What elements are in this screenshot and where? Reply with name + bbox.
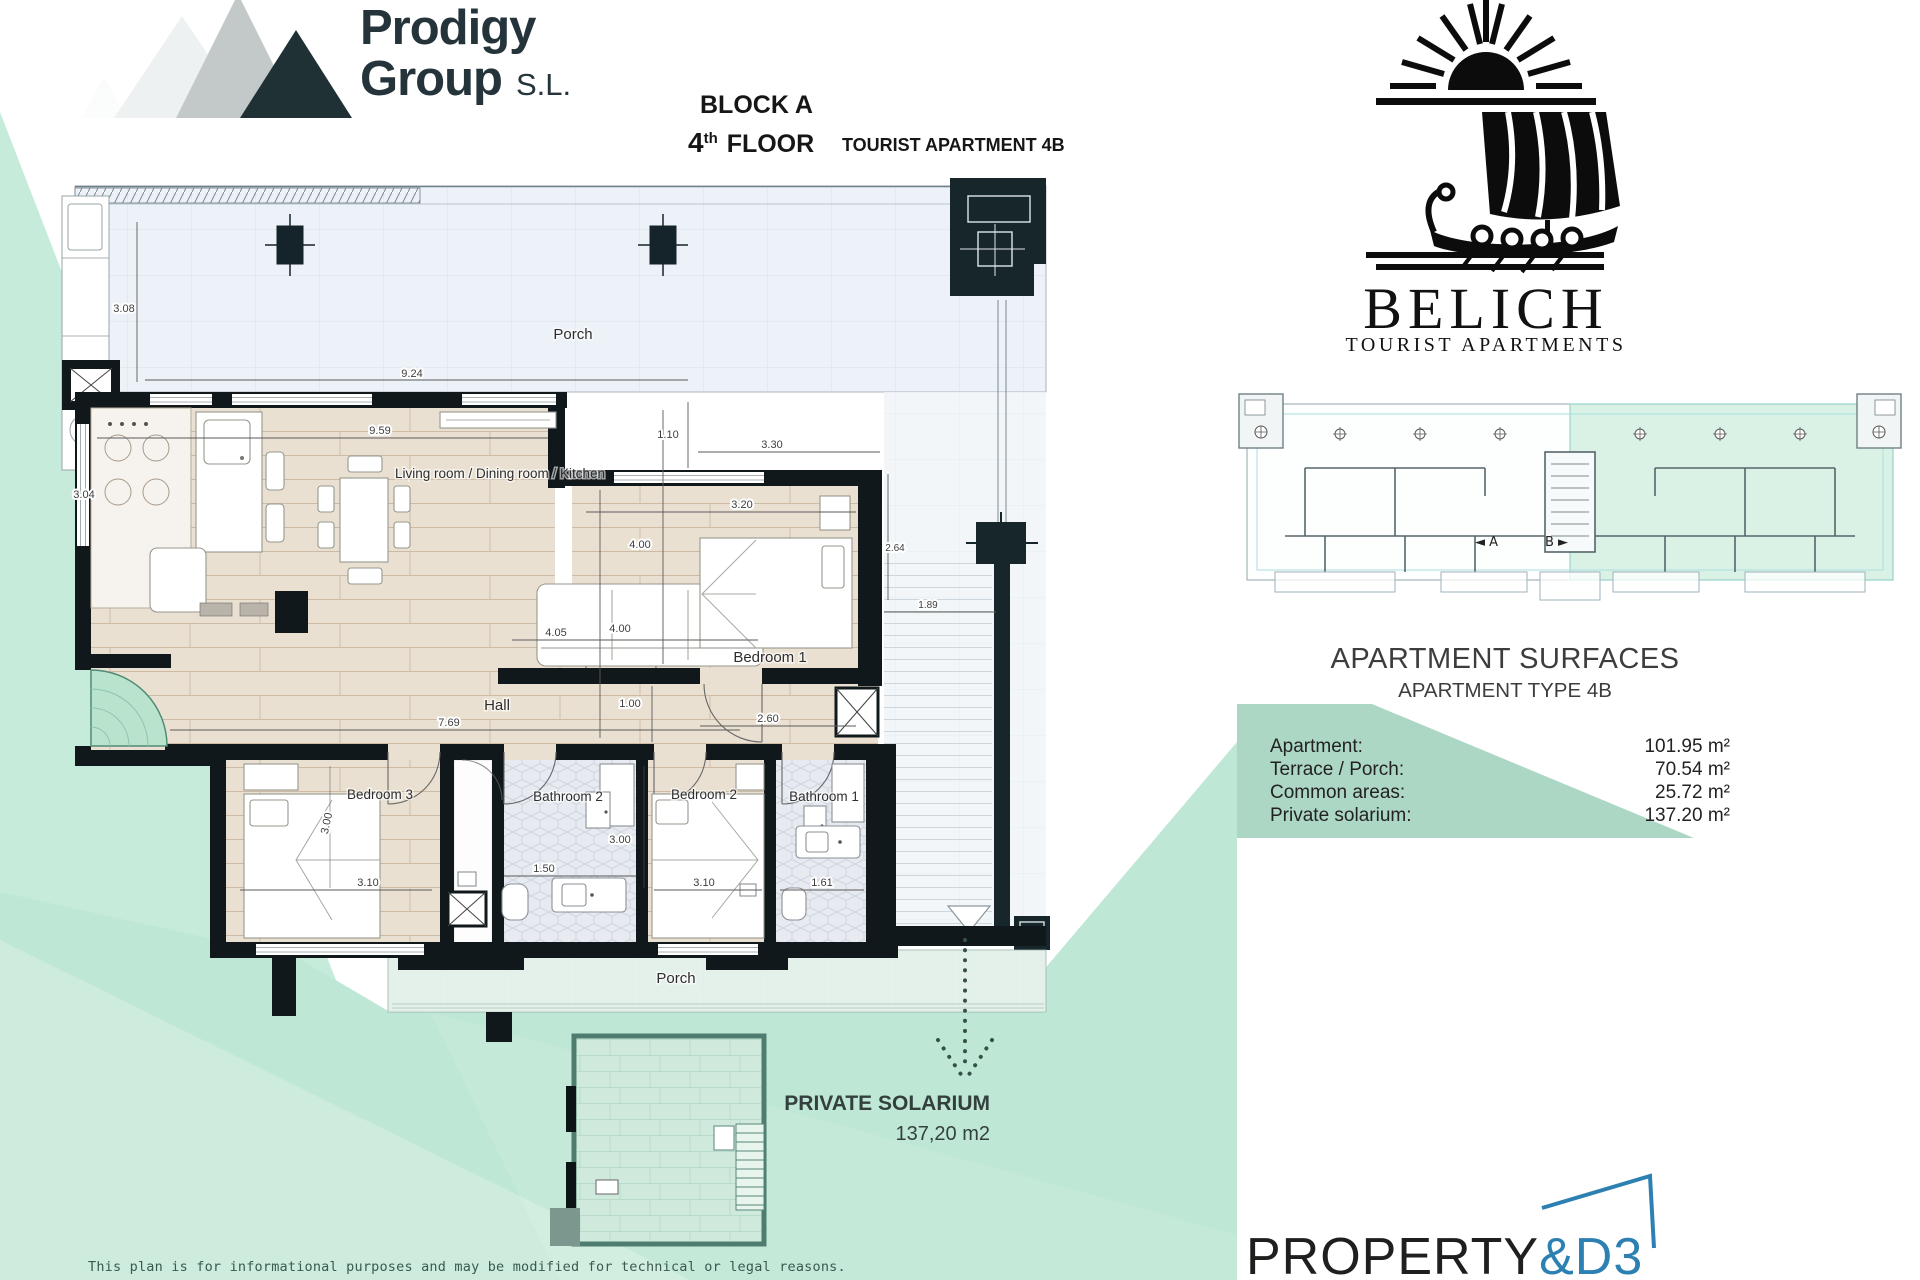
surfaces-row-label: Private solarium: bbox=[1270, 805, 1412, 826]
armchair bbox=[150, 548, 206, 612]
dim-living-height: 4.00 bbox=[629, 539, 650, 551]
svg-text:PROPERTY&D3: PROPERTY&D3 bbox=[1246, 1228, 1643, 1280]
belich-subtitle: TOURIST APARTMENTS bbox=[1346, 334, 1627, 356]
dim-terrace-width: 1.89 bbox=[918, 600, 938, 611]
surfaces-row-label: Terrace / Porch: bbox=[1270, 759, 1404, 780]
solarium-landing bbox=[714, 1126, 734, 1150]
dim-bathroom1-width: 1.61 bbox=[811, 877, 832, 889]
property-wordmark: PROPERTY bbox=[1246, 1228, 1539, 1280]
surfaces-title: APARTMENT SURFACES bbox=[1330, 643, 1679, 675]
porch-post-stub bbox=[486, 1012, 512, 1042]
dim-recess: 1.10 bbox=[657, 429, 678, 441]
right-terrace: 1.89 bbox=[884, 300, 1050, 950]
floor-word: FLOOR bbox=[720, 130, 814, 158]
dim-bedroom1-width: 3.20 bbox=[731, 499, 752, 511]
key-plan-unit-a: ◄ A bbox=[1475, 535, 1498, 550]
top-porch: Porch 3.08 9.24 bbox=[75, 178, 1046, 392]
prodigy-wordmark-suffix: S.L. bbox=[516, 67, 571, 102]
surfaces-row-value: 25.72 m² bbox=[1655, 782, 1730, 803]
dim-bedroom2-height: 3.00 bbox=[609, 834, 630, 846]
surfaces-row-value: 70.54 m² bbox=[1655, 759, 1730, 780]
disclaimer-text: This plan is for informational purposes … bbox=[88, 1259, 846, 1275]
dim-bedroom1-side: 2.64 bbox=[885, 543, 905, 554]
prodigy-wordmark-line1: Prodigy bbox=[360, 1, 536, 55]
dim-porch-height: 3.08 bbox=[113, 303, 134, 315]
dim-kitchen-height: 3.04 bbox=[73, 489, 94, 501]
prodigy-wordmark-line2: Group bbox=[360, 52, 502, 106]
dim-bedroom3-width: 3.10 bbox=[357, 877, 378, 889]
room-label-living: Living room / Dining room / Kitchen bbox=[395, 466, 605, 481]
dim-hall-width: 7.69 bbox=[438, 717, 459, 729]
surfaces-row-label: Common areas: bbox=[1270, 782, 1405, 803]
porch-wall-stub-left bbox=[272, 958, 296, 1016]
key-plan-tower-right bbox=[1857, 394, 1901, 448]
roof-shaft-block bbox=[950, 178, 1046, 296]
floor-plan-sheet: Prodigy Group S.L. BLOCK A 4th FLOOR TOU… bbox=[0, 0, 1920, 1280]
dim-bathroom2-width: 1.50 bbox=[533, 863, 554, 875]
surfaces-row-label: Apartment: bbox=[1270, 736, 1363, 757]
room-label-bathroom1: Bathroom 1 bbox=[789, 789, 859, 804]
room-label-bedroom3: Bedroom 3 bbox=[347, 787, 413, 802]
room-label-top-porch: Porch bbox=[553, 326, 592, 343]
dim-sofa: 4.05 bbox=[545, 627, 566, 639]
room-label-bathroom2: Bathroom 2 bbox=[533, 789, 603, 804]
surfaces-row-value: 137.20 m² bbox=[1644, 805, 1730, 826]
key-plan-stairs bbox=[1540, 572, 1600, 600]
surfaces-subtitle: APARTMENT TYPE 4B bbox=[1398, 679, 1612, 702]
dim-bedroom1-door: 2.60 bbox=[757, 713, 778, 725]
apartment-title: TOURIST APARTMENT 4B bbox=[842, 135, 1065, 155]
block-label: BLOCK A bbox=[700, 91, 813, 119]
dim-hall-opening: 1.00 bbox=[619, 698, 640, 710]
key-plan-tower-left bbox=[1239, 394, 1283, 448]
dim-bedroom2-width: 3.10 bbox=[693, 877, 714, 889]
belich-wordmark: BELICH bbox=[1363, 276, 1608, 341]
floor-number: 4 bbox=[688, 127, 704, 158]
room-label-bedroom2: Bedroom 2 bbox=[671, 787, 737, 802]
room-label-hall: Hall bbox=[484, 697, 510, 714]
hatched-wall-band bbox=[75, 188, 420, 203]
key-plan-highlight-b bbox=[1570, 404, 1893, 580]
floor-ordinal: th bbox=[704, 130, 718, 147]
dining-table bbox=[340, 478, 388, 562]
room-label-bedroom1: Bedroom 1 bbox=[733, 649, 806, 666]
dim-living-width: 9.59 bbox=[369, 425, 390, 437]
key-plan-unit-b: B ► bbox=[1545, 535, 1568, 550]
structural-column bbox=[275, 591, 308, 633]
key-plan: ◄ A B ► bbox=[1239, 394, 1901, 600]
surfaces-row-value: 101.95 m² bbox=[1644, 736, 1730, 757]
dim-bedroom1-porch: 3.30 bbox=[761, 439, 782, 451]
main-floor-plan: Porch 3.08 9.24 bbox=[62, 178, 1050, 1042]
dim-porch-width: 9.24 bbox=[401, 368, 422, 380]
solarium-stair-block bbox=[550, 1036, 764, 1246]
solarium-title: PRIVATE SOLARIUM bbox=[784, 1092, 990, 1115]
property-d3-suffix: &D3 bbox=[1539, 1228, 1643, 1280]
room-label-bottom-porch: Porch bbox=[656, 970, 695, 987]
dim-bedroom1-height: 4.00 bbox=[609, 623, 630, 635]
solarium-area: 137,20 m2 bbox=[895, 1123, 990, 1145]
